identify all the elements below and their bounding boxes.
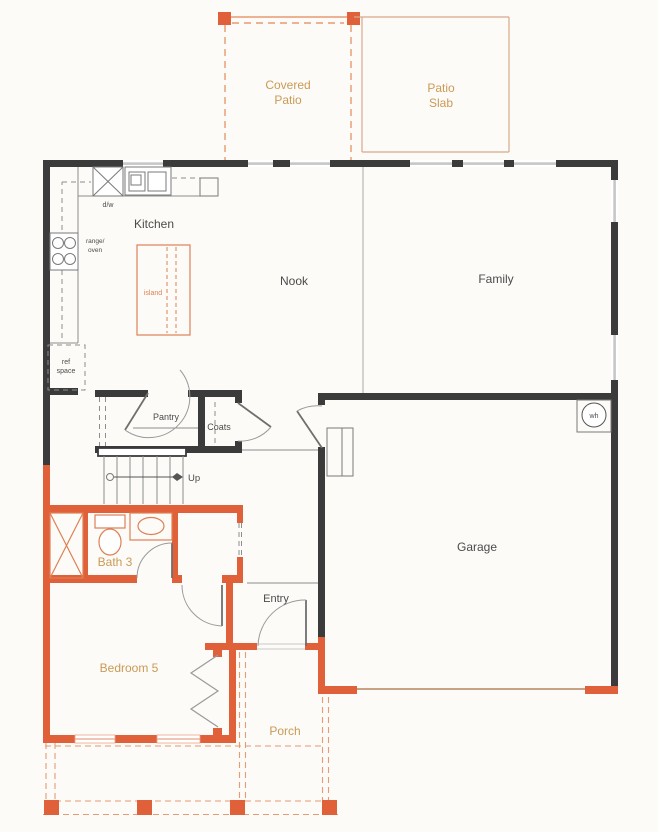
- porch-post: [322, 800, 337, 815]
- porch-label: Porch: [269, 724, 300, 738]
- range-oven-symbol: [50, 233, 78, 270]
- wall-shower-divider: [83, 513, 88, 578]
- closet-anchor-bottom: [213, 728, 222, 735]
- wall-garage-sw-stub: [318, 686, 357, 694]
- pantry-label: Pantry: [153, 412, 180, 422]
- bath3-label: Bath 3: [98, 555, 133, 569]
- covered-patio-label-line1: Covered: [265, 78, 310, 92]
- ref-space-label-line1: ref: [62, 359, 70, 366]
- entry-label: Entry: [263, 593, 289, 605]
- wall-left-upper: [43, 160, 50, 465]
- wall-coats-right-a: [235, 390, 242, 403]
- patio-slab-label-line1: Patio: [427, 81, 455, 95]
- wall-coats-left: [198, 390, 205, 453]
- wall-garage-west-orange: [318, 637, 325, 686]
- dishwasher-label: d/w: [103, 202, 115, 209]
- window: [611, 180, 618, 222]
- water-heater-label: wh: [589, 413, 599, 420]
- wall-bedroom-east-lower: [229, 650, 236, 743]
- floor-plan: Covered Patio Patio Slab: [0, 0, 658, 832]
- covered-patio-label-line2: Patio: [274, 93, 302, 107]
- wall-garage-se-stub: [585, 686, 618, 694]
- sink-symbol: [125, 167, 171, 195]
- garage-label: Garage: [457, 540, 497, 554]
- wall-family-garage: [325, 393, 618, 400]
- dishwasher-symbol: [93, 167, 123, 196]
- wall-pantry-top-b: [188, 390, 242, 397]
- island-label: island: [144, 290, 162, 297]
- porch-post: [230, 800, 245, 815]
- window: [410, 160, 452, 167]
- stairs-nosing: [98, 448, 186, 456]
- range-oven-label-line1: range/: [86, 238, 105, 245]
- wall-pantry-top-a: [95, 390, 148, 397]
- window: [514, 160, 556, 167]
- range-oven-label-line2: oven: [88, 247, 102, 254]
- wall-bath-south-a: [43, 575, 137, 583]
- wall-entry-south-a: [205, 643, 257, 650]
- wall-right: [611, 160, 618, 686]
- window: [123, 160, 163, 167]
- ref-space-label-line2: space: [57, 368, 76, 375]
- wall-bedroom-south: [43, 735, 233, 743]
- window: [290, 160, 330, 167]
- porch-post: [44, 800, 59, 815]
- wall-garage-west-b: [318, 447, 325, 637]
- porch-post: [137, 800, 152, 815]
- bedroom5-label: Bedroom 5: [100, 661, 159, 675]
- window: [248, 160, 273, 167]
- patio-post: [347, 12, 360, 25]
- window: [463, 160, 504, 167]
- wall-coats-right-b: [235, 441, 242, 453]
- wall-garage-west-a: [318, 393, 325, 405]
- kitchen-label: Kitchen: [134, 217, 174, 231]
- wall-bedroom-east-upper: [226, 583, 233, 643]
- nook-label: Nook: [280, 274, 309, 288]
- wall-hall-east-b: [237, 557, 243, 583]
- stairs-up-label: Up: [188, 473, 200, 484]
- window: [157, 735, 200, 743]
- window: [75, 735, 115, 743]
- coats-label: Coats: [207, 422, 231, 432]
- wall-bath-north: [43, 505, 243, 513]
- window: [611, 335, 618, 380]
- family-label: Family: [478, 272, 513, 286]
- patio-slab-label-line2: Slab: [429, 96, 453, 110]
- wall-bath-south-b: [172, 575, 182, 583]
- wall-hall-east-a: [237, 513, 243, 523]
- patio-post: [218, 12, 231, 25]
